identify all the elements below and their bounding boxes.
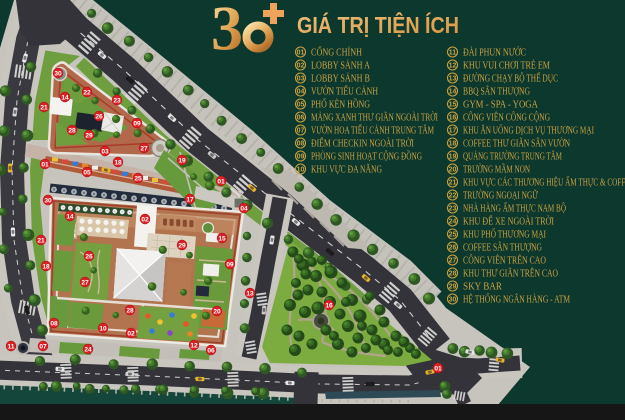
svg-text:KHU PHỐ THƯƠNG MẠI: KHU PHỐ THƯƠNG MẠI [463,227,546,240]
svg-text:TRƯỜNG NGOẠI NGỮ: TRƯỜNG NGOẠI NGỮ [463,189,538,201]
svg-text:16: 16 [449,115,457,122]
svg-text:23: 23 [113,97,121,104]
svg-text:12: 12 [449,63,457,70]
svg-text:21: 21 [40,104,48,111]
svg-text:28: 28 [68,127,76,134]
svg-text:21: 21 [37,237,45,244]
svg-text:06: 06 [207,347,215,354]
svg-text:20: 20 [213,308,221,315]
svg-text:NHÀ HÀNG ẨM THỰC NAM BỘ: NHÀ HÀNG ẨM THỰC NAM BỘ [463,201,566,214]
svg-text:VƯỜN TIỂU CẢNH: VƯỜN TIỂU CẢNH [311,84,378,97]
svg-text:17: 17 [449,128,457,135]
svg-text:09: 09 [133,120,141,127]
svg-text:22: 22 [449,193,457,200]
svg-text:24: 24 [449,219,457,226]
svg-text:KHU VUI CHƠI TRẺ EM: KHU VUI CHƠI TRẺ EM [463,59,550,71]
svg-text:TRƯỜNG MẦM NON: TRƯỜNG MẦM NON [463,162,530,175]
svg-text:19: 19 [449,154,457,161]
svg-text:11: 11 [8,343,15,350]
svg-text:17: 17 [186,196,194,203]
svg-text:04: 04 [240,205,248,212]
svg-text:20: 20 [449,167,457,174]
svg-text:11: 11 [449,50,457,57]
svg-text:30: 30 [54,70,62,77]
svg-text:LOBBY SẢNH B: LOBBY SẢNH B [311,72,370,84]
svg-text:QUẢNG TRƯỜNG TRUNG TÂM: QUẢNG TRƯỜNG TRUNG TÂM [463,150,562,162]
svg-text:08: 08 [50,320,58,327]
svg-text:25: 25 [134,175,142,182]
svg-text:03: 03 [101,148,109,155]
svg-text:26: 26 [95,113,103,120]
svg-text:01: 01 [41,161,49,168]
svg-text:COFFEE THƯ GIÃN SÂN VƯỜN: COFFEE THƯ GIÃN SÂN VƯỜN [463,137,570,149]
svg-text:28: 28 [126,307,134,314]
svg-text:30: 30 [449,297,457,304]
svg-text:ĐƯỜNG CHẠY BỘ THỂ DỤC: ĐƯỜNG CHẠY BỘ THỂ DỤC [463,71,558,84]
svg-text:ĐIỂM CHECKIN NGOÀI TRỜI: ĐIỂM CHECKIN NGOÀI TRỜI [311,136,414,149]
svg-text:14: 14 [66,213,74,220]
svg-text:21: 21 [449,180,457,187]
svg-text:03: 03 [297,76,305,83]
svg-text:18: 18 [449,141,457,148]
svg-text:BBQ SÂN THƯỢNG: BBQ SÂN THƯỢNG [463,85,530,97]
svg-text:01: 01 [434,365,442,372]
svg-text:PHÒNG SINH HOẠT CỘNG ĐỒNG: PHÒNG SINH HOẠT CỘNG ĐỒNG [311,149,422,162]
svg-text:09: 09 [226,261,234,268]
svg-text:24: 24 [84,346,92,353]
svg-text:15: 15 [218,235,226,242]
svg-text:04: 04 [297,89,305,96]
svg-text:14: 14 [449,89,457,96]
svg-text:MẢNG XANH THƯ GIÃN NGOÀI TRỜI: MẢNG XANH THƯ GIÃN NGOÀI TRỜI [311,111,438,123]
svg-text:22: 22 [83,89,91,96]
svg-text:02: 02 [141,216,149,223]
svg-text:CỔNG CHÍNH: CỔNG CHÍNH [311,45,362,58]
svg-text:14: 14 [61,94,69,101]
svg-text:COFFEE SÂN THƯỢNG: COFFEE SÂN THƯỢNG [463,241,542,253]
svg-text:27: 27 [140,145,148,152]
svg-text:13: 13 [246,290,254,297]
svg-text:GIÁ TRỊ TIỆN ÍCH: GIÁ TRỊ TIỆN ÍCH [297,11,459,38]
svg-text:SKY BAR: SKY BAR [463,281,502,292]
svg-text:26: 26 [85,253,93,260]
svg-text:15: 15 [449,102,457,109]
svg-text:05: 05 [297,102,305,109]
svg-text:CÔNG VIÊN TRÊN CAO: CÔNG VIÊN TRÊN CAO [463,254,546,266]
svg-text:07: 07 [297,128,305,135]
svg-text:10: 10 [99,325,107,332]
svg-text:ĐÀI PHUN NƯỚC: ĐÀI PHUN NƯỚC [463,46,526,58]
svg-text:01: 01 [217,178,225,185]
svg-text:05: 05 [83,169,91,176]
svg-text:23: 23 [449,206,457,213]
svg-text:KHU VỰC ĐA NĂNG: KHU VỰC ĐA NĂNG [311,163,382,175]
svg-text:30: 30 [44,197,52,204]
svg-text:PHỐ KÈN HỒNG: PHỐ KÈN HỒNG [311,97,370,110]
svg-text:HỆ THỐNG NGÂN HÀNG - ATM: HỆ THỐNG NGÂN HÀNG - ATM [463,292,570,305]
svg-text:16: 16 [325,302,333,309]
svg-text:KHU ĐỂ XE NGOÀI TRỜI: KHU ĐỂ XE NGOÀI TRỜI [463,214,554,227]
svg-text:06: 06 [297,115,305,122]
svg-text:29: 29 [449,284,457,291]
svg-text:08: 08 [297,141,305,148]
svg-text:28: 28 [449,271,457,278]
svg-text:KHU THƯ GIÃN TRÊN CAO: KHU THƯ GIÃN TRÊN CAO [463,267,558,279]
svg-text:13: 13 [449,76,457,83]
svg-text:02: 02 [127,330,135,337]
svg-text:12: 12 [190,342,198,349]
svg-text:25: 25 [449,232,457,239]
svg-text:27: 27 [81,279,89,286]
svg-text:KHU ĂN UỐNG DỊCH VỤ THƯƠNG MẠI: KHU ĂN UỐNG DỊCH VỤ THƯƠNG MẠI [463,123,594,136]
svg-text:LOBBY SẢNH A: LOBBY SẢNH A [311,59,371,71]
svg-text:29: 29 [178,242,186,249]
svg-text:26: 26 [449,245,457,252]
svg-text:10: 10 [297,167,305,174]
svg-text:02: 02 [297,63,305,70]
svg-text:07: 07 [39,343,47,350]
svg-text:CÔNG VIÊN CÔNG CỘNG: CÔNG VIÊN CÔNG CỘNG [463,111,550,123]
svg-text:VƯỜN HOA TIỂU CẢNH TRUNG TÂM: VƯỜN HOA TIỂU CẢNH TRUNG TÂM [311,123,434,136]
svg-text:18: 18 [114,159,122,166]
svg-text:09: 09 [297,154,305,161]
svg-text:29: 29 [85,132,93,139]
svg-text:KHU VỰC CÁC THƯƠNG HIỆU ẨM THỰ: KHU VỰC CÁC THƯƠNG HIỆU ẨM THỰC & COFFEE [463,175,625,188]
svg-text:27: 27 [449,258,457,265]
svg-text:19: 19 [178,157,186,164]
svg-text:3: 3 [211,0,243,64]
svg-text:18: 18 [42,263,50,270]
svg-text:01: 01 [297,50,305,57]
svg-text:GYM - SPA - YOGA: GYM - SPA - YOGA [463,99,539,110]
